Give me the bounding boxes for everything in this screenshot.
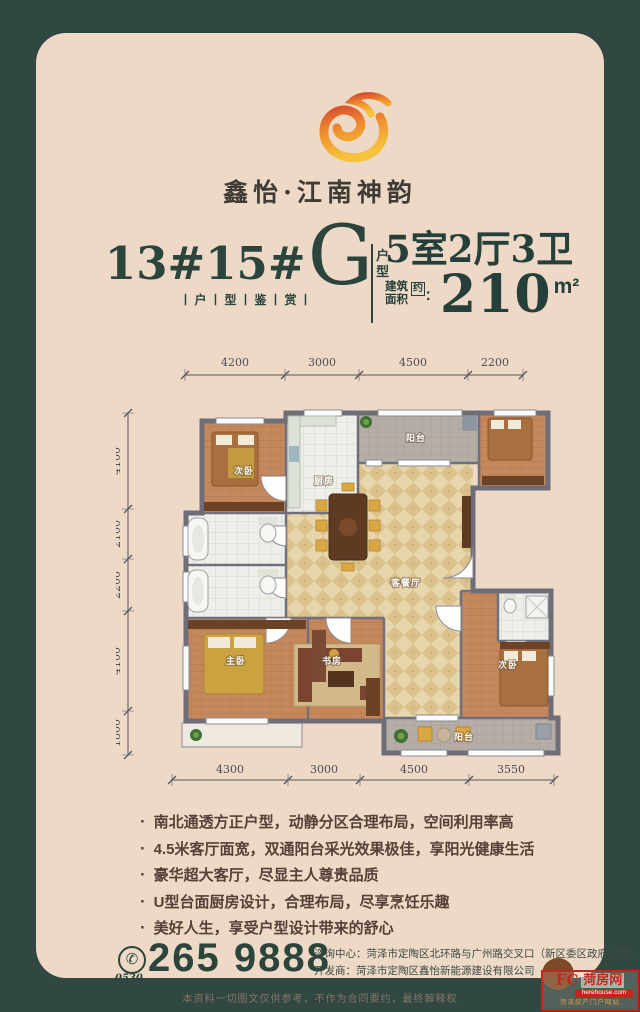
watermark-site-name: 菏房网	[581, 973, 624, 988]
dim-top-3: 4500	[399, 356, 427, 369]
label-master-bedroom: 主卧	[226, 655, 246, 666]
label-living-dining: 客餐厅	[390, 577, 421, 588]
title-divider	[371, 244, 373, 323]
bullet-icon: ·	[140, 892, 146, 912]
feature-text: 4.5米客厅面宽，双通阳台采光效果极佳，享阳光健康生活	[154, 838, 535, 859]
feature-text: 美好人生，享受户型设计带来的舒心	[154, 917, 394, 938]
watermark-tagline: 菏泽房产门户网站	[560, 998, 620, 1009]
phone-area-code: 0530	[115, 973, 143, 984]
watermark-top-row: FC 菏房网	[543, 972, 637, 988]
dim-bottom-4: 3550	[497, 763, 525, 776]
dim-left-5: 1800	[116, 719, 123, 747]
dim-top-2: 3000	[308, 356, 336, 369]
brand-name: 鑫怡·江南神韵	[36, 173, 604, 209]
bullet-icon: ·	[140, 812, 146, 832]
spec-block: 5室2厅3卫 建筑 面积 约 ： 210 m²	[385, 229, 605, 317]
logo-swirl-stroke	[324, 110, 384, 158]
dim-left-3: 2200	[116, 571, 123, 599]
brand-logo-icon	[291, 91, 421, 175]
unit-type-letter: G	[308, 227, 374, 286]
dim-bottom-2: 3000	[310, 763, 338, 776]
feature-item: ·豪华超大客厅，尽显主人尊贵品质	[140, 864, 590, 891]
built-area-label-line2: 面积	[385, 294, 408, 308]
phone-number: 265 9888	[148, 936, 331, 981]
built-area-label: 建筑 面积	[385, 281, 408, 309]
label-study: 书房	[322, 655, 342, 666]
building-numbers: 13#15#	[105, 241, 306, 286]
built-area-label-line1: 建筑	[385, 281, 408, 295]
watermark-fc-logo: FC	[556, 973, 579, 988]
site-watermark: FC 菏房网 herehouse.com 菏泽房产门户网站	[541, 970, 639, 1011]
phone-icon-glyph: ✆	[126, 951, 139, 968]
disclaimer-text: 本资料一切图文仅供参考，不作为合同要约，最终解释权	[36, 990, 604, 1005]
feature-item: ·南北通透方正户型，动静分区合理布局，空间利用率高	[140, 811, 590, 838]
label-bedroom-top-left: 次卧	[234, 465, 254, 476]
unit-title-block: 13#15# G 户 型 丨户丨型丨鉴丨赏丨	[124, 227, 370, 308]
dim-bottom-3: 4500	[400, 763, 428, 776]
area-approx-badge: 约	[411, 282, 425, 296]
poster-card: 鑫怡·江南神韵 13#15# G 户 型 丨户丨型丨鉴丨赏丨 5室2厅3卫 建筑…	[36, 33, 604, 978]
dim-top-4: 2200	[481, 356, 509, 369]
label-balcony-bottom: 阳台	[454, 731, 474, 742]
label-kitchen: 厨房	[314, 475, 334, 486]
label-balcony-top: 阳台	[406, 432, 426, 443]
bullet-icon: ·	[140, 918, 146, 938]
area-value: 210	[440, 273, 552, 317]
feature-item: ·U型台面厨房设计，合理布局，尽享烹饪乐趣	[140, 891, 590, 918]
bullet-icon: ·	[140, 865, 146, 885]
dim-left-2: 2100	[116, 520, 123, 548]
watermark-domain: herehouse.com	[575, 989, 633, 997]
poster-background: 鑫怡·江南神韵 13#15# G 户 型 丨户丨型丨鉴丨赏丨 5室2厅3卫 建筑…	[0, 0, 640, 1012]
phone-icon: ✆	[118, 946, 146, 974]
bullet-icon: ·	[140, 839, 146, 859]
built-area-row: 建筑 面积 约 ： 210 m²	[385, 273, 605, 317]
area-unit: m²	[554, 275, 580, 299]
feature-text: 豪华超大客厅，尽显主人尊贵品质	[154, 864, 379, 885]
dim-top-1: 4200	[221, 356, 249, 369]
feature-text: 南北通透方正户型，动静分区合理布局，空间利用率高	[154, 811, 514, 832]
area-colon: ：	[425, 285, 438, 304]
feature-text: U型台面厨房设计，合理布局，尽享烹饪乐趣	[154, 891, 450, 912]
dim-left-1: 4100	[116, 447, 123, 475]
floor-plan: 次卧 厨房 阳台 客餐厅 主卧 书房 次卧 阳台	[116, 356, 616, 798]
dim-left-4: 4100	[116, 647, 123, 675]
label-bedroom-bottom-right: 次卧	[498, 659, 518, 670]
unit-title: 13#15# G 户 型	[124, 227, 370, 286]
feature-item: ·4.5米客厅面宽，双通阳台采光效果极佳，享阳光健康生活	[140, 838, 590, 865]
consult-center-line: 咨询中心：菏泽市定陶区北环路与广州路交叉口（新区委区政府对面）	[314, 946, 619, 963]
dim-bottom-1: 4300	[216, 763, 244, 776]
feature-list: ·南北通透方正户型，动静分区合理布局，空间利用率高 ·4.5米客厅面宽，双通阳台…	[140, 811, 590, 944]
